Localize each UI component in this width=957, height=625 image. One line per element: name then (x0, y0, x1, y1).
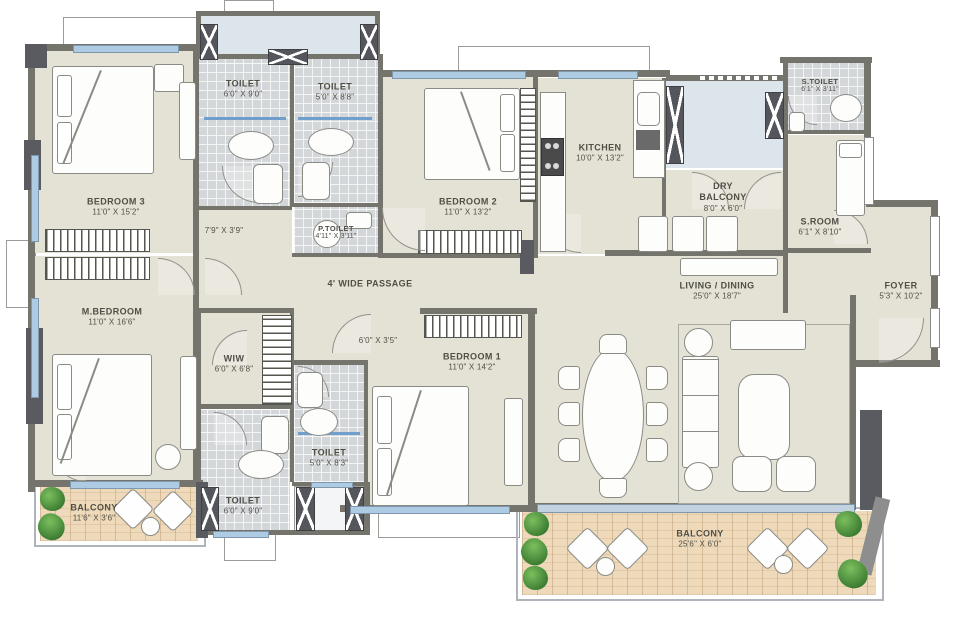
room-dims: 11'0" X 14'2" (443, 363, 501, 373)
plant (524, 512, 549, 536)
washbasin (302, 162, 330, 200)
plant (523, 566, 548, 590)
wall (364, 360, 368, 486)
room-name: KITCHEN (576, 142, 624, 153)
room-dims: 4'11" X 3'11" (315, 233, 356, 242)
kitchen-appliance (636, 130, 660, 150)
wardrobe (418, 230, 522, 254)
room-name: S.ROOM (798, 216, 841, 227)
dresser (179, 82, 196, 160)
wall (292, 253, 378, 257)
window (31, 155, 39, 242)
room-name: DRY BALCONY (692, 181, 754, 204)
room-name: BALCONY (676, 528, 723, 539)
passage-dims: 6'0" X 3'5" (359, 336, 398, 346)
wall (852, 360, 940, 367)
coffee-table (738, 374, 790, 460)
wardrobe (424, 315, 522, 338)
room-dims: 5'0" X 8'3" (310, 459, 349, 469)
room-dims: 11'0" X 15'2" (87, 208, 145, 218)
wall (290, 58, 294, 206)
dining-chair (646, 438, 668, 462)
label-passage-60: 6'0" X 3'5" (359, 336, 398, 346)
window (213, 531, 269, 538)
window (558, 71, 638, 79)
room-dims: 6'0" X 6'8" (215, 365, 254, 375)
label-toilet-bottom: TOILET 6'0" X 9'0" (224, 495, 263, 516)
utility-unit (672, 216, 704, 252)
room-dims: 6'0" X 9'0" (224, 507, 263, 517)
dining-chair (558, 438, 580, 462)
room-name: TOILET (224, 78, 263, 89)
room-dims: 6'1" X 3'11" (801, 86, 839, 95)
burner (553, 163, 559, 169)
label-sroom: S.ROOM 6'1" X 8'10" (798, 216, 841, 237)
ottoman (155, 444, 181, 470)
label-balcony-main: BALCONY 25'6" X 6'0" (676, 528, 723, 549)
dining-chair (558, 366, 580, 390)
wc (308, 128, 354, 156)
dining-table (582, 348, 644, 482)
pillow (839, 143, 862, 158)
room-dims: 25'6" X 6'0" (676, 540, 723, 550)
burner (545, 163, 551, 169)
dresser (180, 356, 197, 450)
room-name: M.BEDROOM (82, 306, 143, 317)
label-toilet-top: TOILET 5'0" X 8'8" (316, 81, 355, 102)
pillow (500, 134, 515, 172)
cabinet (504, 398, 523, 486)
window (31, 298, 39, 398)
label-bedroom3: BEDROOM 3 11'0" X 15'2" (87, 196, 145, 217)
side-table (684, 462, 713, 491)
washing-machine (638, 216, 668, 252)
label-passage-wide: 4' WIDE PASSAGE (328, 278, 413, 289)
console-table (680, 258, 778, 276)
label-balcony-left: BALCONY 11'6" X 3'6" (70, 502, 117, 523)
label-living-dining: LIVING / DINING 25'0" X 18'7" (679, 280, 754, 301)
wardrobe (520, 88, 536, 202)
pillow (57, 75, 72, 117)
window (392, 71, 526, 79)
room-name: LIVING / DINING (679, 280, 754, 291)
x-column (268, 49, 308, 65)
ledge-top-kitchen (458, 46, 650, 73)
ledge-top-left (63, 17, 198, 47)
label-kitchen: KITCHEN 10'0" X 13'2" (576, 142, 624, 163)
room-name: BEDROOM 1 (443, 351, 501, 362)
wall (290, 360, 368, 365)
column (25, 44, 47, 68)
room-dims: 5'0" X 8'8" (316, 93, 355, 103)
wall (378, 54, 383, 258)
room-dims: 11'6" X 3'6" (70, 514, 117, 524)
washbasin (253, 164, 283, 204)
room-dims: 11'0" X 13'2" (439, 208, 497, 218)
room-dims: 11'0" X 16'6" (82, 318, 143, 328)
balcony-table (141, 517, 160, 536)
wall (850, 295, 856, 510)
pillow (500, 94, 515, 132)
passage-label: 4' WIDE PASSAGE (328, 278, 413, 289)
wall (292, 203, 378, 207)
room-dims: 5'3" X 10'2" (879, 292, 922, 302)
wall (783, 248, 871, 253)
window (70, 481, 180, 489)
label-toilet-bed3: TOILET 6'0" X 9'0" (224, 78, 263, 99)
label-passage-79: 7'9" X 3'9" (205, 226, 244, 236)
room-dims: 25'0" X 18'7" (679, 292, 754, 302)
x-column (360, 24, 378, 60)
wc (830, 94, 862, 122)
column (520, 240, 534, 274)
wardrobe-wiw (262, 315, 292, 405)
wall (198, 206, 292, 210)
room-dims: 6'1" X 8'10" (798, 228, 841, 238)
pillow (377, 448, 392, 496)
room-name: BALCONY (70, 502, 117, 513)
room-name: BEDROOM 3 (87, 196, 145, 207)
x-column (666, 86, 684, 164)
label-ptoilet: P.TOILET 4'11" X 3'11" (315, 224, 356, 242)
label-bedroom2: BEDROOM 2 11'0" X 13'2" (439, 196, 497, 217)
window (930, 308, 940, 348)
wall (528, 308, 535, 508)
label-dry-balcony: DRY BALCONY 8'0" X 6'0" (692, 181, 754, 214)
sofa-left (682, 356, 719, 468)
label-bedroom1: BEDROOM 1 11'0" X 14'2" (443, 351, 501, 372)
room-dims: 6'0" X 9'0" (224, 90, 263, 100)
room-dims: 10'0" X 13'2" (576, 154, 624, 164)
window (73, 45, 179, 53)
x-column (296, 487, 315, 531)
sliding-door (537, 504, 855, 513)
label-foyer: FOYER 5'3" X 10'2" (879, 280, 922, 301)
x-column (200, 24, 218, 60)
x-column (765, 92, 784, 139)
room-dims: 8'0" X 6'0" (692, 203, 754, 213)
wardrobe (45, 229, 150, 252)
washbasin (261, 416, 289, 454)
room-name: S.TOILET (801, 77, 839, 86)
dining-chair (646, 402, 668, 426)
label-toilet-mid: TOILET 5'0" X 8'3" (310, 447, 349, 468)
window (930, 216, 940, 276)
label-stoilet: S.TOILET 6'1" X 3'11" (801, 77, 839, 95)
room-name: FOYER (879, 280, 922, 291)
column-duct-right (860, 410, 882, 510)
x-column (201, 487, 219, 531)
room-name: TOILET (316, 81, 355, 92)
washbasin (297, 372, 323, 408)
window (350, 506, 510, 514)
label-wiw: WIW 6'0" X 6'8" (215, 353, 254, 374)
wardrobe (45, 257, 150, 280)
kitchen-sink (637, 92, 660, 126)
window (311, 482, 353, 488)
vent-grille (700, 76, 778, 80)
floor-plan: BEDROOM 3 11'0" X 15'2" TOILET 6'0" X 9'… (0, 0, 957, 625)
window (864, 137, 874, 205)
utility-unit (706, 216, 738, 252)
plant (40, 487, 65, 511)
wc (238, 450, 284, 479)
room-name: P.TOILET (315, 224, 356, 233)
sofa-bench (730, 320, 806, 350)
wc (300, 408, 338, 436)
shower-partition (298, 117, 372, 120)
room-name: TOILET (224, 495, 263, 506)
pouffe (732, 456, 772, 492)
wall (780, 57, 872, 63)
wall (866, 200, 938, 207)
wall (196, 308, 294, 313)
room-name: TOILET (310, 447, 349, 458)
dining-chair (558, 402, 580, 426)
pillow (57, 364, 72, 410)
balcony-table (596, 557, 615, 576)
pillow (377, 396, 392, 444)
balcony-table (774, 555, 793, 574)
dining-chair (599, 478, 627, 498)
wall (196, 11, 380, 16)
plant (835, 511, 862, 537)
wc (228, 131, 274, 160)
pouffe (776, 456, 816, 492)
shower-partition (204, 117, 286, 120)
burner (553, 143, 559, 149)
room-name: BEDROOM 2 (439, 196, 497, 207)
label-mbedroom: M.BEDROOM 11'0" X 16'6" (82, 306, 143, 327)
burner (545, 143, 551, 149)
flower-bed-bottom (378, 511, 520, 538)
wall (420, 308, 537, 314)
dining-chair (646, 366, 668, 390)
dining-chair (599, 334, 627, 354)
room-name: WIW (215, 353, 254, 364)
side-table (684, 328, 713, 357)
washbasin (789, 112, 805, 132)
stove (541, 138, 564, 176)
passage-dims: 7'9" X 3'9" (205, 226, 244, 236)
wall (28, 44, 35, 492)
